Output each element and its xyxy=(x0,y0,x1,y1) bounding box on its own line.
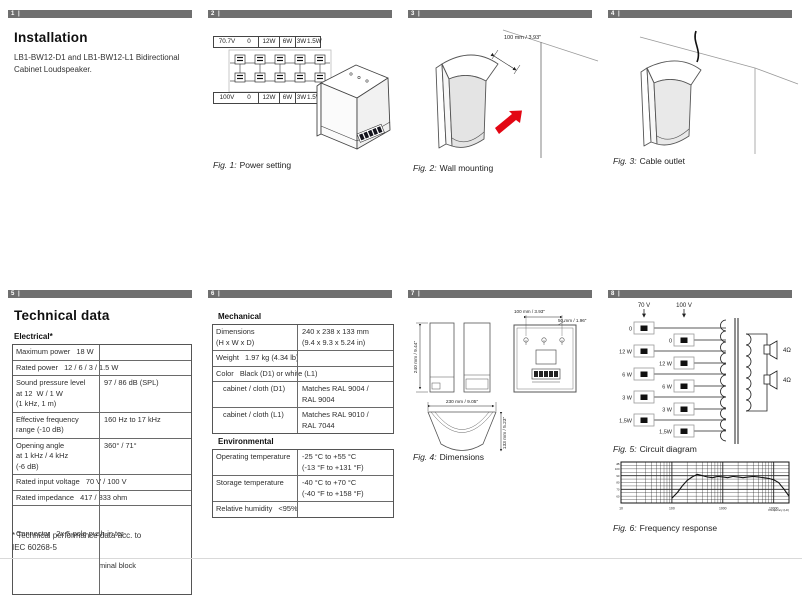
panel-power-setting: 2 | 70.7V 0 12W 6W 3W 1.5W 100V 0 12W xyxy=(208,10,392,282)
strip-cell: 0 xyxy=(240,93,258,103)
fig3-caption: Fig. 3:Cable outlet xyxy=(613,156,685,166)
panel-circuit: 8 | 70 V 100 V 0 12 W 6 W 3 W 1,5W xyxy=(608,290,792,562)
panel-5-header-bar: 5 | xyxy=(8,290,192,298)
strip-cell: 0 xyxy=(240,37,258,47)
impedance-label-2: 4Ω xyxy=(783,378,791,384)
tap-label: 6 W xyxy=(622,373,633,379)
svg-text:Frequency (Hz): Frequency (Hz) xyxy=(768,508,789,512)
tap-label: 1,5W xyxy=(659,430,673,436)
strip-cell: 12W xyxy=(258,37,279,47)
row-value: 97 / 86 dB (SPL) xyxy=(99,378,188,410)
loudspeaker-drawing xyxy=(641,61,701,146)
row-value: Matches RAL 9004 / RAL 9004 xyxy=(297,384,390,405)
panel-wall-mounting: 3 | 100 mm / 3.93" Fig. 2:Wall mounting xyxy=(408,10,592,282)
technical-footnote: * Technical performance data acc. to IEC… xyxy=(12,530,188,555)
fig2-label: Fig. 2: xyxy=(413,163,437,173)
row-label: cabinet / cloth (L1) xyxy=(216,410,297,431)
top-view xyxy=(428,412,496,451)
row-value: -40 °C to +70 °C (-40 °F to +158 °F) xyxy=(297,478,390,499)
panel-mechanical: 6 | Mechanical Dimensions (H x W x D) 24… xyxy=(208,290,392,562)
strip-cell: 12W xyxy=(258,93,279,103)
strip-cell: 1.5W xyxy=(307,37,320,47)
panel-1-number: 1 | xyxy=(11,11,21,17)
label-100v: 100 V xyxy=(676,303,692,309)
panel-dimensions: 7 | 240 mm / 9.44" xyxy=(408,290,592,562)
tap-label: 12 W xyxy=(659,362,673,368)
table-column-divider xyxy=(99,345,100,594)
environmental-table: Operating temperature -25 °C to +55 °C (… xyxy=(212,449,394,518)
row-dimensions: Dimensions (H x W x D) 240 x 238 x 133 m… xyxy=(213,325,393,351)
panel-installation: 1 | Installation LB1-BW12-D1 and LB1-BW1… xyxy=(8,10,192,282)
tap-label: 0 xyxy=(629,327,632,333)
row-label: Storage temperature xyxy=(216,478,297,499)
installation-title: Installation xyxy=(14,30,88,45)
row-value: Matches RAL 9010 / RAL 7044 xyxy=(297,410,390,431)
panel-8-number: 8 | xyxy=(611,291,621,297)
rear-view xyxy=(514,325,576,392)
environmental-section-label: Environmental xyxy=(218,437,274,446)
row-sound-pressure: Sound pressure level at 12 W / 1 W (1 kH… xyxy=(13,376,191,413)
strip-cell: 70.7V xyxy=(214,37,240,47)
dim-height-label: 240 mm / 9.44" xyxy=(413,341,419,374)
fig4-label: Fig. 4: xyxy=(413,452,437,462)
page-bottom-rule xyxy=(0,558,802,559)
svg-text:90: 90 xyxy=(616,474,620,478)
row-opening-angle: Opening angle at 1 kHz / 4 kHz (-6 dB) 3… xyxy=(13,439,191,476)
tap-label: 1,5W xyxy=(619,419,633,425)
fig1-caption: Fig. 1:Power setting xyxy=(213,160,291,170)
row-color: Color Black (D1) or white (L1) xyxy=(213,367,393,383)
installation-intro: LB1-BW12-D1 and LB1-BW12-L1 Bidirectiona… xyxy=(14,52,186,77)
svg-text:100: 100 xyxy=(615,467,620,471)
panel-cable-outlet: 4 | Fig. 3:Cable outlet xyxy=(608,10,792,282)
fig1-text: Power setting xyxy=(240,160,292,170)
electrical-section-label: Electrical* xyxy=(14,332,53,341)
wall-distance-label: 100 mm / 3.93" xyxy=(504,35,541,41)
panel-4-number: 4 | xyxy=(611,11,621,17)
row-label: cabinet / cloth (D1) xyxy=(216,384,297,405)
row-weight: Weight 1.97 kg (4.34 lb) xyxy=(213,351,393,367)
fig4-text: Dimensions xyxy=(440,452,484,462)
row-cabinet-d1: cabinet / cloth (D1) Matches RAL 9004 / … xyxy=(213,382,393,408)
row-value: 160 Hz to 17 kHz xyxy=(99,415,188,436)
svg-text:10: 10 xyxy=(619,507,623,511)
cable-outlet-drawing xyxy=(608,28,798,158)
row-maximum-power: Maximum power 18 W xyxy=(13,345,191,361)
strip-cell: 3W xyxy=(295,37,307,47)
panel-4-header-bar: 4 | xyxy=(608,10,792,18)
taps-100v: 0 12 W 6 W 3 W 1,5W xyxy=(659,334,726,437)
row-value: 360° / 71° xyxy=(99,441,188,473)
label-70v: 70 V xyxy=(638,303,650,309)
mounting-direction-arrow xyxy=(495,111,522,135)
row-cabinet-l1: cabinet / cloth (L1) Matches RAL 9010 / … xyxy=(213,408,393,433)
panel-8-header-bar: 8 | xyxy=(608,290,792,298)
dim-holes-label: 100 mm / 3.93" xyxy=(514,309,545,314)
speaker-symbols xyxy=(764,341,777,389)
tap-label: 12 W xyxy=(619,350,633,356)
svg-text:80: 80 xyxy=(616,481,620,485)
fig6-label: Fig. 6: xyxy=(613,523,637,533)
svg-text:60: 60 xyxy=(616,494,620,498)
row-line2: minal block xyxy=(99,561,188,572)
transformer xyxy=(721,318,768,444)
power-strip-100v: 100V 0 12W 6W 3W 1.5W xyxy=(213,92,321,104)
row-frequency-range: Effective frequency range (-10 dB) 160 H… xyxy=(13,413,191,439)
fig4-caption: Fig. 4:Dimensions xyxy=(413,452,484,462)
row-storage-temp: Storage temperature -40 °C to +70 °C (-4… xyxy=(213,476,393,502)
fig5-caption: Fig. 5:Circuit diagram xyxy=(613,444,697,454)
tap-label: 0 xyxy=(669,339,672,345)
panel-6-number: 6 | xyxy=(211,291,221,297)
table-column-divider xyxy=(297,325,298,433)
strip-cell: 100V xyxy=(214,93,240,103)
row-label: Opening angle at 1 kHz / 4 kHz (-6 dB) xyxy=(16,441,99,473)
svg-text:dB: dB xyxy=(616,462,620,466)
panel-1-header-bar: 1 | xyxy=(8,10,192,18)
panel-3-number: 3 | xyxy=(411,11,421,17)
strip-cell: 3W xyxy=(295,93,307,103)
row-rated-impedance: Rated impedance 417 / 833 ohm xyxy=(13,491,191,507)
fig6-text: Frequency response xyxy=(640,523,718,533)
row-label: Sound pressure level at 12 W / 1 W (1 kH… xyxy=(16,378,99,410)
svg-text:70: 70 xyxy=(616,487,620,491)
row-rated-voltage: Rated input voltage 70 V / 100 V xyxy=(13,475,191,491)
svg-text:100: 100 xyxy=(669,507,675,511)
dimensions-drawing: 240 mm / 9.44" 100 mm xyxy=(408,295,603,453)
row-label: Operating temperature xyxy=(216,452,297,473)
fig3-text: Cable outlet xyxy=(640,156,685,166)
frequency-response-chart: 1010010001000060708090100dBFrequency (Hz… xyxy=(611,460,791,512)
row-value: 240 x 238 x 133 mm (9.4 x 9.3 x 5.24 in) xyxy=(297,327,390,348)
wall-mounting-drawing: 100 mm / 3.93" xyxy=(408,28,598,163)
svg-text:1000: 1000 xyxy=(719,507,727,511)
fig2-text: Wall mounting xyxy=(440,163,494,173)
table-column-divider xyxy=(297,450,298,517)
strip-cell: 6W xyxy=(279,37,295,47)
fig5-label: Fig. 5: xyxy=(613,444,637,454)
fig2-caption: Fig. 2:Wall mounting xyxy=(413,163,493,173)
impedance-label-1: 4Ω xyxy=(783,348,791,354)
tap-label: 3 W xyxy=(662,408,673,414)
panel-3-header-bar: 3 | xyxy=(408,10,592,18)
fig5-text: Circuit diagram xyxy=(640,444,697,454)
cable xyxy=(695,31,698,62)
loudspeaker-drawing xyxy=(436,55,498,148)
dim-holes2-label: 50 mm / 1.96" xyxy=(558,318,587,323)
dim-depth-label: 133 mm / 5.23" xyxy=(502,417,508,450)
fig6-caption: Fig. 6:Frequency response xyxy=(613,523,717,533)
power-strip-70v: 70.7V 0 12W 6W 3W 1.5W xyxy=(213,36,321,48)
loudspeaker-rear-drawing xyxy=(311,58,396,153)
dim-width-label: 230 mm / 9.05" xyxy=(446,399,479,405)
row-humidity: Relative humidity <95% xyxy=(213,502,393,517)
row-label: Dimensions (H x W x D) xyxy=(216,327,297,348)
row-operating-temp: Operating temperature -25 °C to +55 °C (… xyxy=(213,450,393,476)
panel-5-number: 5 | xyxy=(11,291,21,297)
tap-label: 6 W xyxy=(662,385,673,391)
panel-technical-data: 5 | Technical data Electrical* Maximum p… xyxy=(8,290,192,562)
panel-6-header-bar: 6 | xyxy=(208,290,392,298)
mechanical-section-label: Mechanical xyxy=(218,312,261,321)
mechanical-table: Dimensions (H x W x D) 240 x 238 x 133 m… xyxy=(212,324,394,434)
taps-70v: 0 12 W 6 W 3 W 1,5W xyxy=(619,322,726,426)
circuit-diagram: 70 V 100 V 0 12 W 6 W 3 W 1,5W xyxy=(608,298,798,448)
fig1-label: Fig. 1: xyxy=(213,160,237,170)
datasheet-page: { "headers": ["1 |", "2 |", "3 |", "4 |"… xyxy=(0,0,802,567)
panel-2-header-bar: 2 | xyxy=(208,10,392,18)
side-views xyxy=(430,323,490,392)
technical-data-title: Technical data xyxy=(14,308,110,323)
fig3-label: Fig. 3: xyxy=(613,156,637,166)
panel-2-number: 2 | xyxy=(211,11,221,17)
row-label: Effective frequency range (-10 dB) xyxy=(16,415,99,436)
row-value: -25 °C to +55 °C (-13 °F to +131 °F) xyxy=(297,452,390,473)
row-rated-power: Rated power 12 / 6 / 3 / 1.5 W xyxy=(13,361,191,377)
strip-cell: 6W xyxy=(279,93,295,103)
tap-label: 3 W xyxy=(622,396,633,402)
